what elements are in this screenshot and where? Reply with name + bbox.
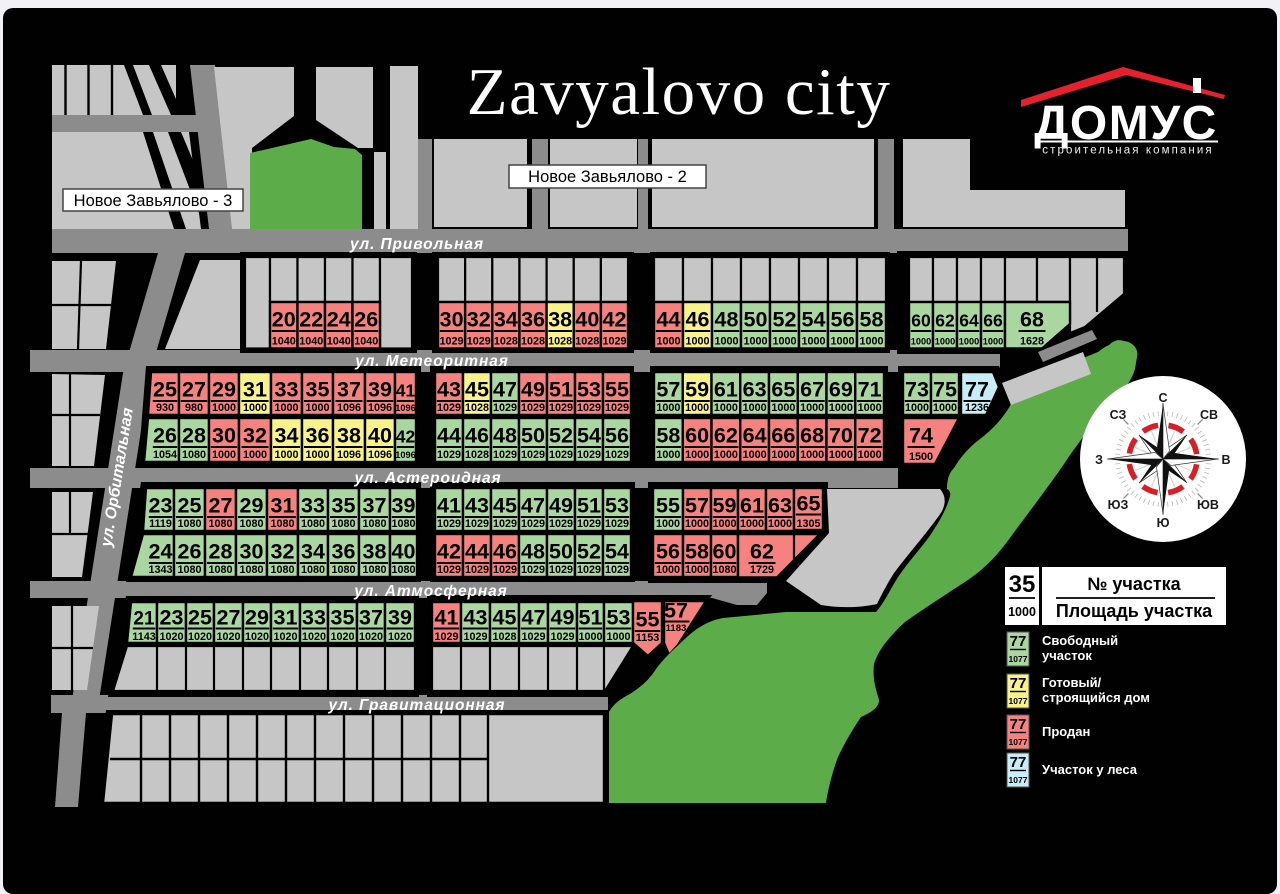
svg-text:1077: 1077 — [1009, 775, 1028, 785]
svg-text:22: 22 — [299, 308, 323, 332]
svg-text:37: 37 — [363, 494, 387, 518]
svg-text:28: 28 — [182, 424, 206, 448]
svg-text:1029: 1029 — [465, 518, 489, 530]
svg-text:43: 43 — [464, 606, 488, 630]
svg-text:38: 38 — [548, 308, 572, 332]
svg-text:36: 36 — [332, 540, 356, 564]
svg-text:1040: 1040 — [272, 336, 296, 348]
svg-text:1029: 1029 — [437, 518, 461, 530]
svg-text:58: 58 — [656, 424, 680, 448]
svg-text:49: 49 — [549, 494, 573, 518]
svg-text:1029: 1029 — [602, 336, 626, 348]
svg-text:Продан: Продан — [1042, 724, 1090, 739]
svg-text:1080: 1080 — [391, 564, 415, 576]
svg-text:1080: 1080 — [208, 564, 232, 576]
svg-text:1000: 1000 — [743, 336, 767, 348]
svg-text:1080: 1080 — [301, 564, 325, 576]
svg-text:38: 38 — [337, 424, 361, 448]
svg-text:47: 47 — [522, 606, 546, 630]
svg-text:1029: 1029 — [577, 564, 601, 576]
svg-text:СЗ: СЗ — [1110, 408, 1127, 422]
svg-text:1000: 1000 — [933, 402, 957, 414]
svg-text:1020: 1020 — [245, 631, 269, 643]
svg-text:35: 35 — [1009, 571, 1036, 598]
svg-text:1096: 1096 — [395, 403, 415, 413]
svg-text:1000: 1000 — [714, 402, 738, 414]
svg-text:29: 29 — [212, 378, 236, 402]
svg-text:32: 32 — [243, 424, 267, 448]
svg-text:1080: 1080 — [270, 518, 294, 530]
svg-text:1080: 1080 — [239, 564, 263, 576]
svg-text:54: 54 — [802, 308, 826, 332]
svg-text:1000: 1000 — [685, 518, 709, 530]
svg-text:ЮВ: ЮВ — [1197, 498, 1219, 512]
svg-text:1080: 1080 — [331, 518, 355, 530]
svg-text:1000: 1000 — [685, 402, 709, 414]
svg-text:70: 70 — [829, 424, 853, 448]
svg-text:54: 54 — [577, 424, 601, 448]
svg-text:65: 65 — [771, 378, 795, 402]
svg-text:1077: 1077 — [1009, 696, 1028, 706]
svg-text:34: 34 — [494, 308, 518, 332]
svg-text:1000: 1000 — [656, 564, 680, 576]
svg-text:30: 30 — [440, 308, 464, 332]
svg-text:33: 33 — [301, 494, 325, 518]
svg-text:29: 29 — [240, 494, 264, 518]
svg-text:участок: участок — [1042, 648, 1092, 663]
svg-text:строительная компания: строительная компания — [1042, 145, 1213, 157]
svg-text:1096: 1096 — [368, 449, 392, 461]
svg-text:60: 60 — [911, 311, 931, 331]
svg-text:24: 24 — [327, 308, 351, 332]
svg-text:69: 69 — [829, 378, 853, 402]
svg-text:25: 25 — [178, 494, 202, 518]
svg-text:1000: 1000 — [606, 631, 630, 643]
svg-text:50: 50 — [744, 308, 768, 332]
svg-text:53: 53 — [607, 606, 631, 630]
svg-text:47: 47 — [493, 378, 517, 402]
svg-text:1000: 1000 — [858, 402, 882, 414]
svg-text:С: С — [1158, 391, 1167, 405]
svg-text:1000: 1000 — [743, 402, 767, 414]
svg-text:38: 38 — [363, 540, 387, 564]
svg-text:60: 60 — [685, 424, 709, 448]
svg-text:44: 44 — [657, 308, 681, 332]
svg-text:1029: 1029 — [577, 402, 601, 414]
svg-text:1029: 1029 — [493, 518, 517, 530]
svg-text:1029: 1029 — [521, 402, 545, 414]
svg-text:72: 72 — [858, 424, 882, 448]
svg-text:1029: 1029 — [521, 564, 545, 576]
svg-text:1029: 1029 — [605, 402, 629, 414]
svg-text:50: 50 — [549, 540, 573, 564]
svg-text:1028: 1028 — [465, 449, 489, 461]
svg-text:1029: 1029 — [577, 518, 601, 530]
svg-text:1028: 1028 — [492, 631, 516, 643]
svg-text:35: 35 — [331, 606, 355, 630]
svg-text:1080: 1080 — [182, 449, 206, 461]
svg-text:31: 31 — [243, 378, 267, 402]
svg-text:48: 48 — [715, 308, 739, 332]
svg-text:1029: 1029 — [493, 402, 517, 414]
svg-text:36: 36 — [306, 424, 330, 448]
svg-text:26: 26 — [178, 540, 202, 564]
svg-text:60: 60 — [713, 540, 737, 564]
svg-text:71: 71 — [858, 378, 882, 402]
svg-text:75: 75 — [933, 378, 957, 402]
svg-text:1029: 1029 — [549, 518, 573, 530]
svg-text:37: 37 — [359, 606, 383, 630]
svg-text:1000: 1000 — [714, 449, 738, 461]
svg-text:56: 56 — [831, 308, 855, 332]
svg-text:1119: 1119 — [149, 518, 172, 530]
svg-text:1000: 1000 — [243, 402, 267, 414]
svg-text:1000: 1000 — [656, 402, 680, 414]
svg-text:51: 51 — [577, 494, 601, 518]
svg-text:41: 41 — [437, 494, 461, 518]
svg-text:1029: 1029 — [605, 449, 629, 461]
svg-text:77: 77 — [1010, 675, 1027, 692]
svg-text:55: 55 — [656, 494, 680, 518]
svg-text:1080: 1080 — [239, 518, 263, 530]
svg-text:1029: 1029 — [550, 631, 574, 643]
svg-text:1000: 1000 — [274, 449, 298, 461]
svg-text:57: 57 — [664, 599, 688, 623]
svg-text:1029: 1029 — [437, 449, 461, 461]
svg-text:52: 52 — [549, 424, 573, 448]
svg-text:1000: 1000 — [243, 449, 267, 461]
svg-text:1729: 1729 — [750, 564, 774, 576]
svg-text:39: 39 — [368, 378, 392, 402]
svg-text:1096: 1096 — [337, 402, 361, 414]
svg-text:1153: 1153 — [636, 632, 659, 644]
svg-text:45: 45 — [493, 606, 517, 630]
svg-text:1029: 1029 — [577, 449, 601, 461]
svg-text:28: 28 — [209, 540, 233, 564]
svg-text:1080: 1080 — [301, 518, 325, 530]
svg-text:В: В — [1221, 453, 1230, 467]
svg-text:1040: 1040 — [299, 336, 323, 348]
svg-text:59: 59 — [685, 378, 709, 402]
svg-text:ул. Метеоритная: ул. Метеоритная — [354, 353, 509, 370]
svg-text:1000: 1000 — [911, 337, 931, 347]
svg-text:63: 63 — [768, 494, 792, 518]
svg-text:ул. Привольная: ул. Привольная — [349, 236, 484, 253]
svg-text:1000: 1000 — [685, 336, 709, 348]
svg-text:строящийся дом: строящийся дом — [1042, 690, 1150, 705]
svg-text:21: 21 — [133, 609, 155, 630]
svg-text:1000: 1000 — [1008, 605, 1036, 619]
svg-text:20: 20 — [272, 308, 296, 332]
svg-text:1000: 1000 — [712, 518, 736, 530]
svg-text:1029: 1029 — [521, 631, 545, 643]
svg-text:1000: 1000 — [858, 449, 882, 461]
svg-text:1029: 1029 — [467, 336, 491, 348]
svg-text:74: 74 — [909, 424, 933, 448]
svg-text:51: 51 — [579, 606, 603, 630]
svg-text:1020: 1020 — [216, 631, 240, 643]
svg-text:1080: 1080 — [270, 564, 294, 576]
svg-text:48: 48 — [493, 424, 517, 448]
svg-text:52: 52 — [577, 540, 601, 564]
svg-text:1028: 1028 — [494, 336, 518, 348]
svg-text:1000: 1000 — [685, 449, 709, 461]
svg-text:1080: 1080 — [208, 518, 232, 530]
svg-text:1080: 1080 — [712, 564, 736, 576]
svg-text:З: З — [1095, 453, 1103, 467]
svg-text:ул. Астероидная: ул. Астероидная — [353, 470, 501, 487]
svg-text:1028: 1028 — [575, 336, 599, 348]
svg-text:66: 66 — [983, 311, 1003, 331]
svg-text:ул. Гравитационная: ул. Гравитационная — [328, 697, 506, 714]
svg-text:44: 44 — [465, 540, 489, 564]
svg-text:32: 32 — [467, 308, 491, 332]
svg-text:27: 27 — [182, 378, 206, 402]
svg-text:№ участка: № участка — [1087, 574, 1181, 594]
svg-text:1077: 1077 — [1009, 737, 1028, 747]
svg-text:Площадь участка: Площадь участка — [1056, 601, 1213, 621]
svg-text:47: 47 — [521, 494, 545, 518]
svg-text:62: 62 — [935, 311, 955, 331]
svg-text:1096: 1096 — [368, 402, 392, 414]
svg-text:1000: 1000 — [685, 564, 709, 576]
svg-text:45: 45 — [465, 378, 489, 402]
svg-text:1029: 1029 — [493, 449, 517, 461]
svg-text:41: 41 — [435, 606, 459, 630]
svg-text:55: 55 — [605, 378, 629, 402]
svg-text:25: 25 — [188, 606, 212, 630]
svg-text:1000: 1000 — [830, 336, 854, 348]
svg-text:1000: 1000 — [859, 336, 883, 348]
svg-text:73: 73 — [905, 378, 929, 402]
svg-text:ул. Атмосферная: ул. Атмосферная — [353, 583, 507, 600]
svg-text:66: 66 — [771, 424, 795, 448]
svg-text:33: 33 — [275, 378, 299, 402]
svg-text:1028: 1028 — [465, 402, 489, 414]
svg-text:1000: 1000 — [771, 449, 795, 461]
svg-text:1000: 1000 — [829, 402, 853, 414]
svg-text:43: 43 — [437, 378, 461, 402]
svg-text:59: 59 — [713, 494, 737, 518]
svg-text:1020: 1020 — [159, 631, 183, 643]
svg-text:1000: 1000 — [656, 449, 680, 461]
svg-text:1500: 1500 — [909, 451, 933, 463]
svg-text:40: 40 — [575, 308, 599, 332]
svg-text:39: 39 — [388, 606, 412, 630]
svg-text:1000: 1000 — [578, 631, 602, 643]
svg-text:Новое Завьялово - 3: Новое Завьялово - 3 — [74, 192, 233, 210]
svg-text:40: 40 — [392, 540, 416, 564]
svg-text:36: 36 — [521, 308, 545, 332]
svg-text:64: 64 — [743, 424, 767, 448]
svg-text:1000: 1000 — [305, 449, 329, 461]
svg-text:1000: 1000 — [959, 337, 979, 347]
svg-text:Zavyalovo city: Zavyalovo city — [467, 55, 892, 129]
svg-text:1020: 1020 — [330, 631, 354, 643]
svg-text:61: 61 — [740, 494, 764, 518]
svg-text:49: 49 — [551, 606, 575, 630]
svg-text:1000: 1000 — [740, 518, 764, 530]
svg-text:46: 46 — [493, 540, 517, 564]
svg-text:34: 34 — [301, 540, 325, 564]
svg-text:1020: 1020 — [388, 631, 412, 643]
svg-text:53: 53 — [605, 494, 629, 518]
svg-text:1000: 1000 — [768, 518, 792, 530]
svg-text:1054: 1054 — [153, 449, 177, 461]
svg-text:1029: 1029 — [549, 564, 573, 576]
svg-text:52: 52 — [773, 308, 797, 332]
svg-text:1000: 1000 — [983, 337, 1003, 347]
svg-text:Готовый/: Готовый/ — [1042, 675, 1102, 690]
svg-text:27: 27 — [217, 606, 241, 630]
svg-text:1000: 1000 — [772, 336, 796, 348]
svg-text:35: 35 — [306, 378, 330, 402]
svg-text:1000: 1000 — [905, 402, 929, 414]
svg-text:1000: 1000 — [212, 449, 236, 461]
svg-text:58: 58 — [685, 540, 709, 564]
svg-text:1029: 1029 — [605, 564, 629, 576]
svg-text:1080: 1080 — [177, 518, 201, 530]
svg-text:62: 62 — [714, 424, 738, 448]
svg-text:1080: 1080 — [362, 518, 386, 530]
svg-text:49: 49 — [521, 378, 545, 402]
svg-text:980: 980 — [185, 402, 203, 414]
svg-text:63: 63 — [743, 378, 767, 402]
svg-text:1029: 1029 — [465, 564, 489, 576]
svg-text:1000: 1000 — [274, 402, 298, 414]
svg-text:32: 32 — [271, 540, 295, 564]
svg-text:Новое Завьялово - 2: Новое Завьялово - 2 — [528, 168, 687, 186]
svg-text:1000: 1000 — [656, 336, 680, 348]
svg-text:56: 56 — [656, 540, 680, 564]
svg-text:1029: 1029 — [549, 449, 573, 461]
svg-text:58: 58 — [860, 308, 884, 332]
svg-text:1096: 1096 — [395, 450, 415, 460]
svg-text:1029: 1029 — [493, 564, 517, 576]
svg-text:34: 34 — [275, 424, 299, 448]
svg-text:1000: 1000 — [743, 449, 767, 461]
svg-text:54: 54 — [605, 540, 629, 564]
svg-text:50: 50 — [521, 424, 545, 448]
svg-text:77: 77 — [965, 378, 989, 402]
svg-text:1080: 1080 — [177, 564, 201, 576]
svg-text:1029: 1029 — [463, 631, 487, 643]
svg-text:31: 31 — [274, 606, 298, 630]
svg-text:65: 65 — [797, 492, 821, 516]
svg-text:30: 30 — [212, 424, 236, 448]
svg-text:1236: 1236 — [965, 402, 989, 414]
svg-text:1020: 1020 — [273, 631, 297, 643]
svg-text:1028: 1028 — [521, 336, 545, 348]
svg-text:1040: 1040 — [327, 336, 351, 348]
svg-text:1343: 1343 — [148, 564, 172, 576]
svg-text:1080: 1080 — [331, 564, 355, 576]
svg-text:57: 57 — [656, 378, 680, 402]
svg-text:77: 77 — [1010, 633, 1027, 650]
svg-text:43: 43 — [465, 494, 489, 518]
svg-text:46: 46 — [465, 424, 489, 448]
svg-text:1096: 1096 — [337, 449, 361, 461]
svg-text:41: 41 — [396, 381, 416, 401]
svg-text:62: 62 — [750, 540, 774, 564]
svg-text:СВ: СВ — [1200, 408, 1218, 422]
svg-text:39: 39 — [392, 494, 416, 518]
svg-text:1020: 1020 — [302, 631, 326, 643]
svg-text:57: 57 — [685, 494, 709, 518]
svg-text:1305: 1305 — [796, 518, 820, 530]
svg-text:1029: 1029 — [434, 631, 458, 643]
svg-text:56: 56 — [605, 424, 629, 448]
svg-text:55: 55 — [636, 608, 660, 632]
svg-text:23: 23 — [160, 606, 184, 630]
svg-text:Свободный: Свободный — [1042, 633, 1118, 648]
svg-text:1040: 1040 — [354, 336, 378, 348]
svg-text:930: 930 — [156, 402, 174, 414]
svg-text:64: 64 — [959, 311, 979, 331]
svg-text:48: 48 — [521, 540, 545, 564]
svg-text:Ю: Ю — [1157, 516, 1170, 530]
svg-text:1000: 1000 — [212, 402, 236, 414]
svg-text:1000: 1000 — [771, 402, 795, 414]
svg-text:25: 25 — [153, 378, 177, 402]
svg-text:1000: 1000 — [714, 336, 738, 348]
svg-text:1028: 1028 — [548, 336, 572, 348]
svg-text:1000: 1000 — [656, 518, 680, 530]
svg-text:1029: 1029 — [605, 518, 629, 530]
svg-text:1029: 1029 — [440, 336, 464, 348]
svg-text:31: 31 — [271, 494, 295, 518]
svg-text:67: 67 — [800, 378, 824, 402]
svg-text:61: 61 — [714, 378, 738, 402]
svg-text:37: 37 — [337, 378, 361, 402]
svg-text:1029: 1029 — [437, 402, 461, 414]
svg-text:ЮЗ: ЮЗ — [1108, 498, 1129, 512]
svg-text:1000: 1000 — [935, 337, 955, 347]
svg-text:1000: 1000 — [801, 336, 825, 348]
svg-text:1183: 1183 — [666, 623, 687, 634]
svg-text:1077: 1077 — [1009, 654, 1028, 664]
svg-text:1080: 1080 — [362, 564, 386, 576]
svg-text:1029: 1029 — [521, 518, 545, 530]
svg-text:77: 77 — [1010, 754, 1027, 771]
svg-text:1000: 1000 — [800, 402, 824, 414]
svg-text:46: 46 — [686, 308, 710, 332]
svg-text:77: 77 — [1010, 716, 1027, 733]
svg-text:51: 51 — [549, 378, 573, 402]
svg-text:1000: 1000 — [829, 449, 853, 461]
svg-text:Участок у леса: Участок у леса — [1042, 762, 1138, 777]
svg-text:42: 42 — [396, 427, 416, 447]
svg-text:33: 33 — [302, 606, 326, 630]
svg-text:68: 68 — [800, 424, 824, 448]
svg-text:26: 26 — [153, 424, 177, 448]
svg-text:1628: 1628 — [1020, 336, 1044, 348]
svg-text:53: 53 — [577, 378, 601, 402]
svg-text:1020: 1020 — [359, 631, 383, 643]
svg-text:1029: 1029 — [549, 402, 573, 414]
svg-text:1143: 1143 — [132, 631, 155, 643]
svg-text:23: 23 — [149, 494, 173, 518]
svg-text:42: 42 — [437, 540, 461, 564]
svg-text:35: 35 — [332, 494, 356, 518]
svg-text:26: 26 — [354, 308, 378, 332]
svg-text:40: 40 — [368, 424, 392, 448]
svg-text:44: 44 — [437, 424, 461, 448]
svg-text:45: 45 — [493, 494, 517, 518]
svg-text:24: 24 — [149, 540, 173, 564]
svg-text:42: 42 — [603, 308, 627, 332]
svg-text:1000: 1000 — [800, 449, 824, 461]
